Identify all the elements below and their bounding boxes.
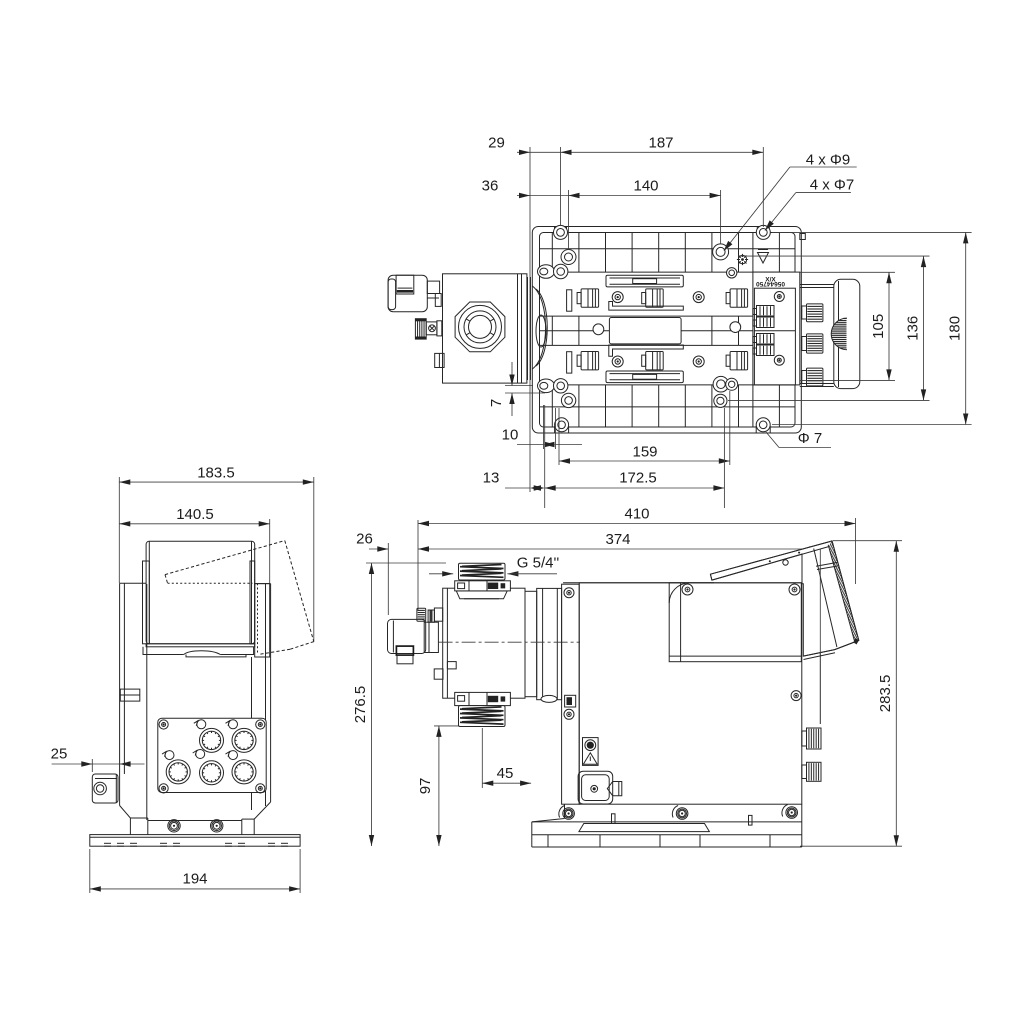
- svg-text:105: 105: [870, 314, 887, 339]
- svg-text:183.5: 183.5: [197, 464, 235, 481]
- svg-text:4 x Φ9: 4 x Φ9: [806, 152, 851, 169]
- svg-text:159: 159: [632, 444, 657, 461]
- svg-text:45: 45: [497, 765, 514, 782]
- svg-text:180: 180: [947, 316, 964, 341]
- svg-text:97: 97: [417, 778, 434, 795]
- svg-text:374: 374: [605, 531, 630, 548]
- svg-text:29: 29: [488, 135, 505, 152]
- svg-text:Φ 7: Φ 7: [798, 430, 822, 447]
- svg-text:283.5: 283.5: [877, 675, 894, 713]
- svg-text:140.5: 140.5: [176, 506, 214, 523]
- svg-text:136: 136: [905, 316, 922, 341]
- svg-text:4 x Φ7: 4 x Φ7: [810, 177, 855, 194]
- svg-text:140: 140: [633, 178, 658, 195]
- svg-text:05644750: 05644750: [756, 280, 785, 287]
- svg-text:36: 36: [482, 178, 499, 195]
- svg-text:7: 7: [488, 399, 505, 407]
- svg-text:410: 410: [624, 506, 649, 523]
- svg-text:194: 194: [182, 871, 207, 888]
- svg-text:276.5: 276.5: [352, 686, 369, 724]
- svg-text:172.5: 172.5: [619, 470, 657, 487]
- svg-text:G 5/4'': G 5/4'': [517, 555, 560, 572]
- svg-text:26: 26: [356, 531, 373, 548]
- svg-text:13: 13: [483, 470, 500, 487]
- svg-text:10: 10: [502, 427, 519, 444]
- svg-text:25: 25: [51, 746, 68, 763]
- svg-text:187: 187: [648, 135, 673, 152]
